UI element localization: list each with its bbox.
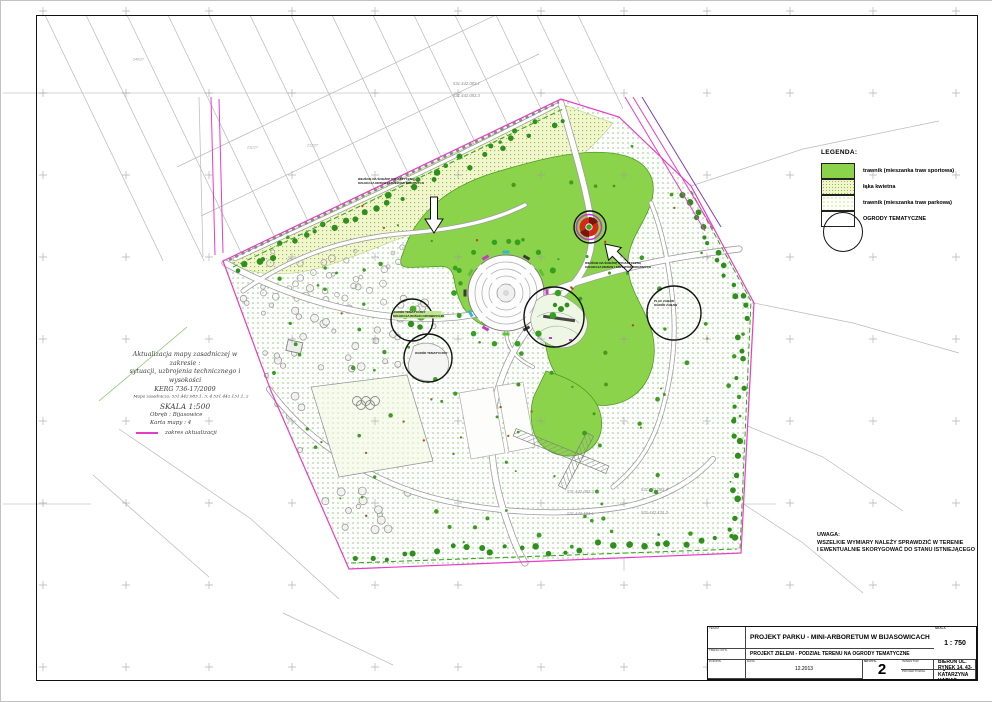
scale-cell: SKALA 1 : 750 [934, 627, 976, 660]
legend-item-meadow: łąka kwietna [821, 179, 954, 195]
swatch-park-lawn [821, 195, 855, 211]
investor: GMINA BIERUŃ UL. RYNEK 14, 43-150 BIERUŃ [934, 660, 976, 670]
garden1-label: OGRÓD TEMATYCZNY KOLEKCJA ROŚLIN OZDOBNY… [393, 311, 442, 319]
swatch-flower-meadow [821, 179, 855, 195]
parcel-number: 212/27 [307, 144, 318, 148]
date-value: 12.2013 [795, 666, 813, 672]
drawing-sheet: LEGENDA: trawnik (mieszanka traw sportow… [0, 0, 992, 702]
legend-label: łąka kwietna [863, 184, 895, 190]
designer: mgr inż. KATARZYNA KAPIAS [934, 670, 976, 679]
drawing-content: PROJEKT ZIELENI - PODZIAŁ TERENU NA OGRO… [746, 649, 934, 660]
warning-line: I EWENTUALNIE SKORYGOWAĆ DO STANU ISTNIE… [817, 547, 975, 555]
temat-label-cell: TEMAT [708, 627, 746, 649]
date-cell: DATA 12.2013 [746, 660, 863, 679]
projektowal-label-cell: PROJEKTOWAŁ [901, 670, 934, 679]
warning-note: UWAGA: WSZELKIE WYMIARY NALEŻY SPRAWDZIĆ… [817, 532, 975, 555]
sheet-label: 531.442.083.4 [641, 488, 668, 492]
legend-label: OGRODY TEMATYCZNE [863, 216, 926, 222]
theme-garden-circle-symbol [823, 212, 863, 252]
sheet-label: 531.442.083.3 [567, 490, 594, 494]
sheet-label: 531.442.131.1 [567, 512, 594, 516]
drawing-number: 2 [878, 661, 886, 678]
title-block: TEMAT PROJEKT PARKU - MINI-ARBORETUM W B… [707, 626, 977, 680]
sheet-label: 531.442.083.1 [453, 82, 480, 86]
project-title: PROJEKT PARKU - MINI-ARBORETUM W BIJASOW… [746, 627, 934, 649]
sheet-label: 531.442.131.2 [641, 511, 668, 515]
entrance-target [577, 215, 602, 240]
legend-item-sport: trawnik (mieszanka traw sportowa) [821, 163, 954, 179]
legend-label: trawnik (mieszanka traw sportowa) [863, 168, 954, 174]
drawing-number-cell: NR RYS. 2 [863, 660, 901, 679]
entrance-north-label: WEJŚCIE NA ŚCIEŻKĘ DYDAKTYCZNĄ KOLEKCJA … [358, 178, 424, 186]
magenta-line-sample [136, 432, 158, 434]
playground-label: PLAC ZABAW OGRÓD ZABAW [654, 300, 677, 308]
swatch-sport-lawn [821, 163, 855, 179]
legend-label: trawnik (mieszanka traw parkowa) [863, 200, 952, 206]
legend-item-park-lawn: trawnik (mieszanka traw parkowa) [821, 195, 954, 211]
inwestor-label-cell: INWESTOR [901, 660, 934, 670]
garden2-label: OGRÓD TEMATYCZNY [415, 352, 447, 356]
garden-feature [408, 343, 448, 381]
scale-value: 1 : 750 [944, 640, 966, 647]
tresc-label-cell: TREŚĆ RYS. [708, 649, 746, 660]
signature-cell: PODPIS [708, 660, 746, 679]
sheet-label: 531.442.083.3 [453, 94, 480, 98]
entrance-east-label: WEJŚCIE NA ŚCIEŻKĘ DYDAKTYCZNĄ KOLEKCJA … [585, 262, 651, 270]
warning-title: UWAGA: [817, 532, 975, 540]
parcel-number: 240/27 [133, 58, 144, 62]
legend-title: LEGENDA: [821, 149, 954, 156]
map-update-note: Aktualizacja mapy zasadniczej w zakresie… [122, 351, 248, 436]
parcel-number: 211/27 [247, 146, 258, 150]
update-extent-key: zakres aktualizacji [122, 430, 248, 436]
